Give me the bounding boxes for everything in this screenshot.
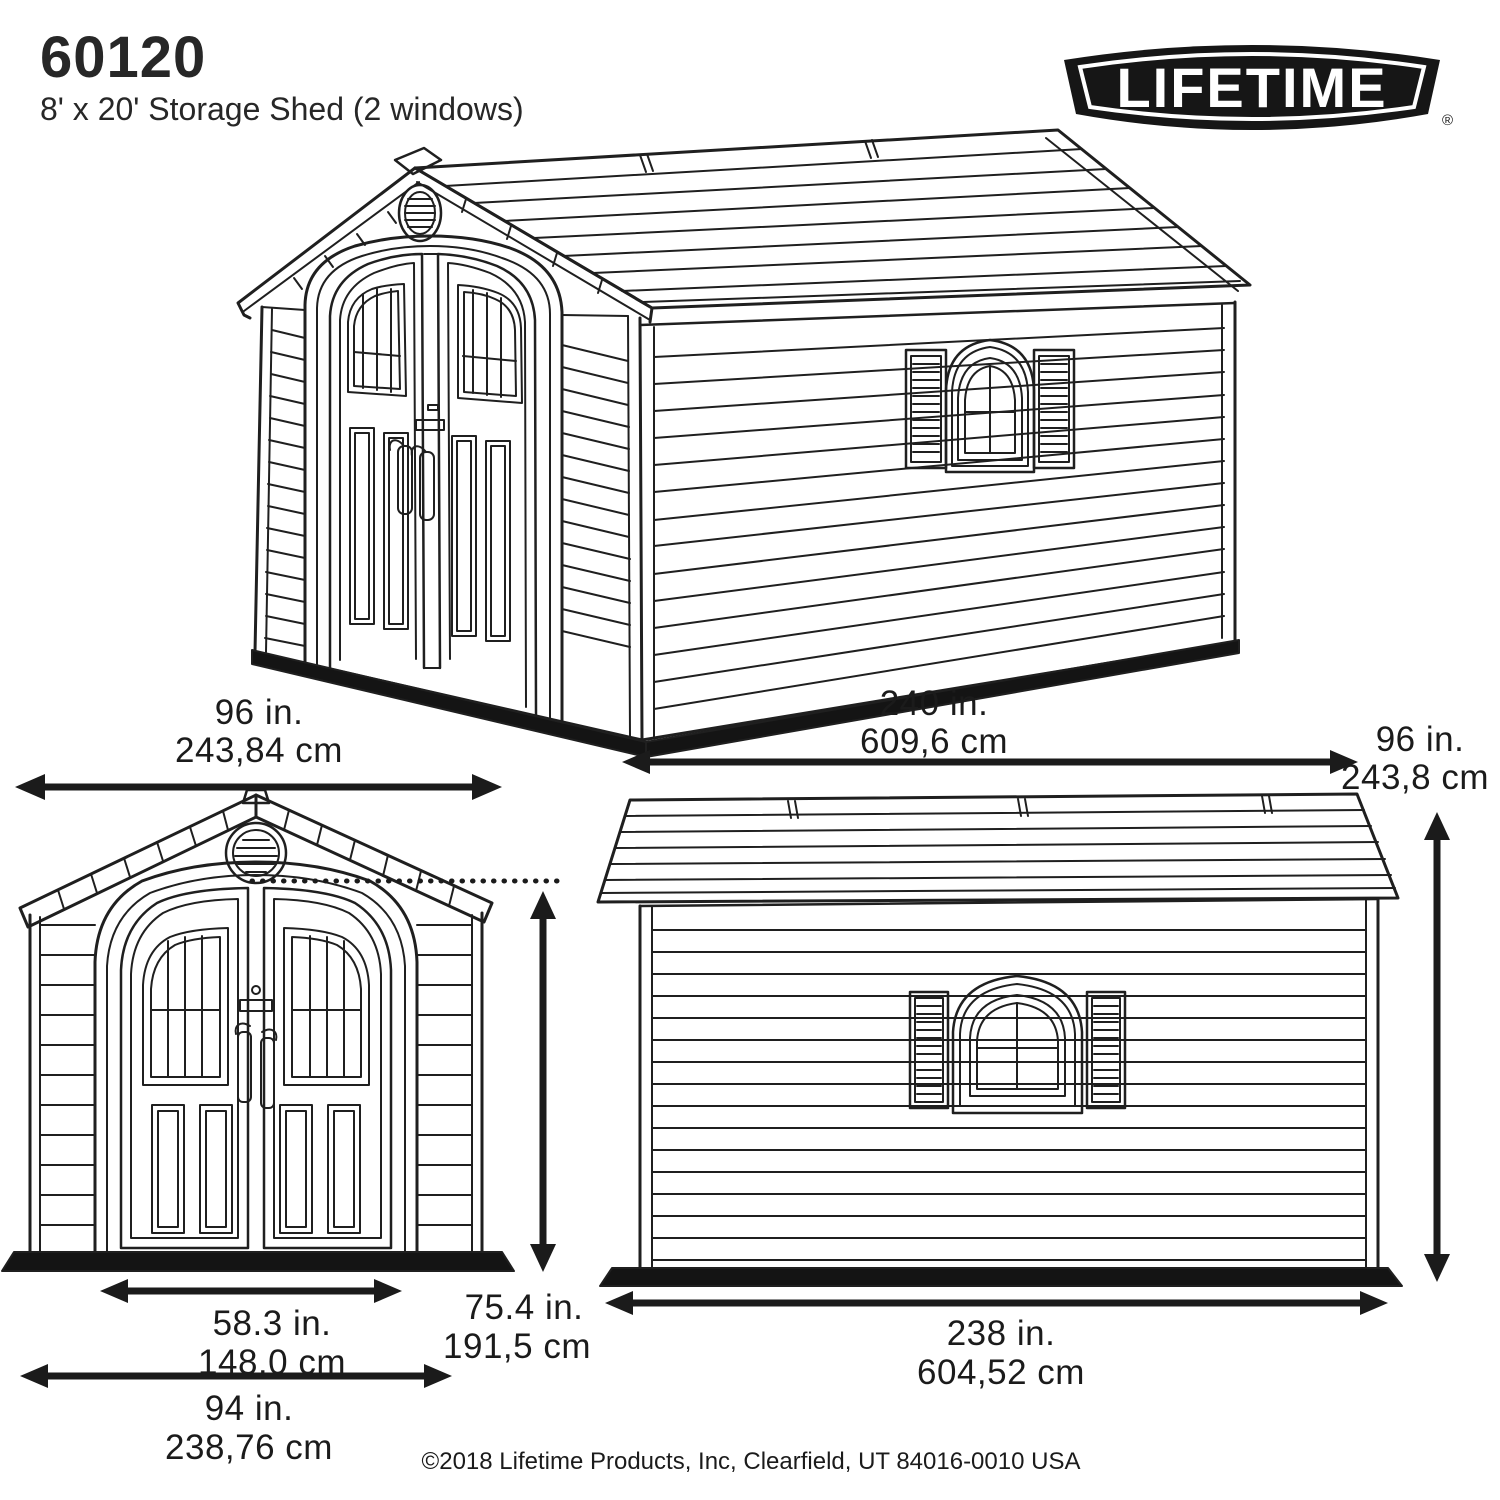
front-view-drawing [2, 790, 514, 1271]
door-height-label-cm: 191,5 cm [443, 1327, 591, 1367]
lifetime-logo: LIFETIME [1056, 34, 1448, 138]
door-height-arrow [530, 891, 556, 1272]
model-number: 60120 [40, 28, 524, 89]
height-label-cm: 243,8 cm [1341, 758, 1489, 798]
side-view-base [600, 1268, 1402, 1286]
dimension-arrows [15, 750, 1450, 1388]
title-block: 60120 8' x 20' Storage Shed (2 windows) [40, 28, 524, 128]
isometric-side-wall [640, 302, 1237, 740]
front-width-label-in: 96 in. [215, 693, 304, 733]
door-width-label-in: 58.3 in. [213, 1304, 332, 1344]
base-length-label-cm: 604,52 cm [917, 1353, 1085, 1393]
side-view-roof [598, 794, 1398, 902]
product-title: 8' x 20' Storage Shed (2 windows) [40, 91, 524, 128]
isometric-gable-vent-icon [399, 185, 441, 241]
shed-dimension-diagram: 60120 8' x 20' Storage Shed (2 windows) … [0, 0, 1500, 1500]
isometric-view-drawing [238, 130, 1250, 757]
height-arrow [1424, 812, 1450, 1282]
base-width-label-in: 94 in. [205, 1389, 294, 1429]
height-label-in: 96 in. [1376, 720, 1465, 760]
isometric-front-doors [330, 254, 536, 715]
door-height-label-in: 75.4 in. [465, 1288, 584, 1328]
front-view-doors [95, 862, 417, 1252]
door-width-arrow [100, 1279, 402, 1303]
base-width-label-cm: 238,76 cm [165, 1428, 333, 1468]
front-view-roof [20, 790, 492, 927]
registered-trademark-symbol: ® [1442, 112, 1453, 129]
copyright-text: ©2018 Lifetime Products, Inc, Clearfield… [422, 1448, 1081, 1476]
base-length-arrow [605, 1291, 1388, 1315]
front-width-label-cm: 243,84 cm [175, 731, 343, 771]
base-length-label-in: 238 in. [947, 1314, 1056, 1354]
length-label-in: 240 in. [880, 684, 989, 724]
side-view-wall [640, 899, 1378, 1268]
side-view-drawing [598, 794, 1402, 1286]
logo-brand-text: LIFETIME [1116, 56, 1387, 119]
front-view-base [2, 1252, 514, 1271]
front-view-walls [30, 913, 482, 1252]
length-label-cm: 609,6 cm [860, 722, 1008, 762]
door-width-label-cm: 148,0 cm [198, 1343, 346, 1383]
